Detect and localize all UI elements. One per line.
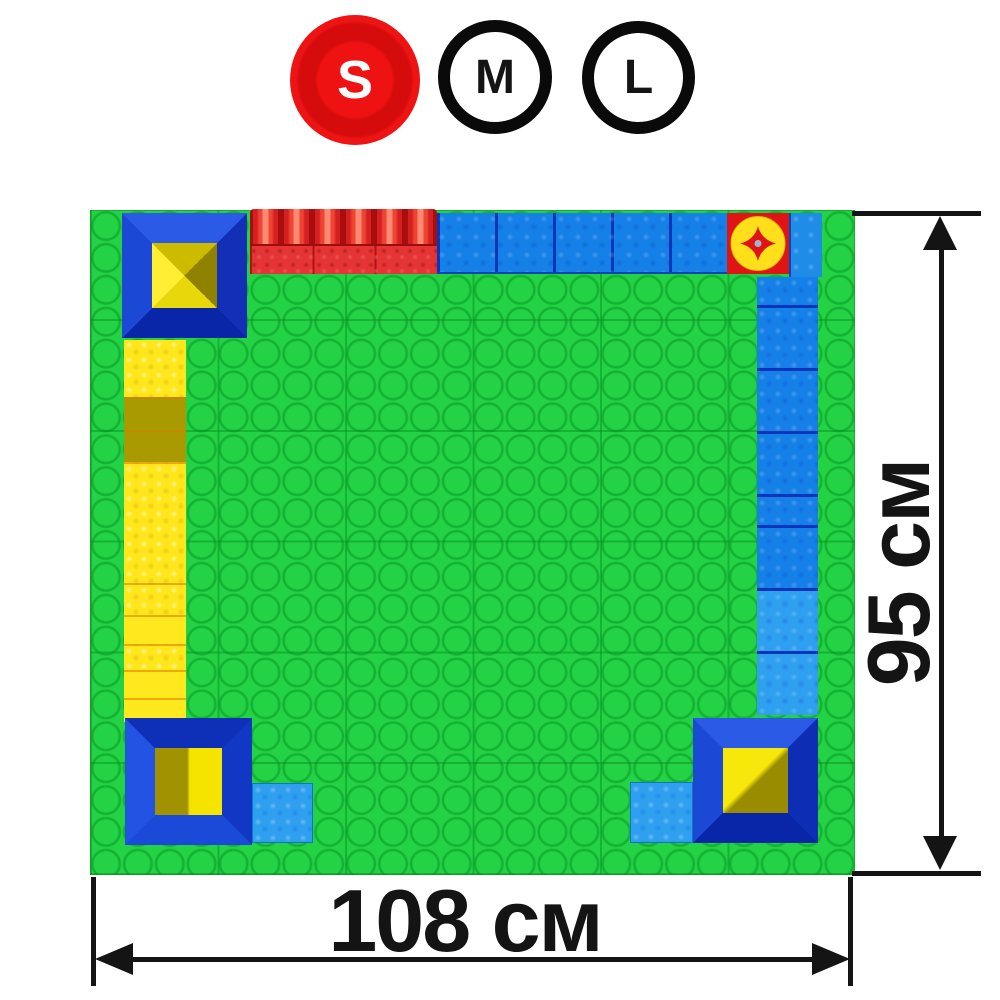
red-textured-blocks-top [250,244,437,274]
yellow-strip-segment [124,644,186,670]
yellow-strip-segment [124,583,186,615]
yellow-strip-segment [124,397,186,430]
yellow-strip-segment [124,462,186,583]
blue-blocks-top [437,213,727,274]
product-image: S M L [0,0,1000,1000]
blue-strip-right [757,277,818,715]
size-option-l-label: L [624,50,653,105]
blue-strip-segment [757,651,818,715]
arrowhead-left-icon [95,943,133,975]
light-blue-block-bottom-left [252,783,313,843]
size-option-s-label: S [337,49,373,111]
blue-block-top-right [789,213,822,277]
light-blue-block-bottom-right [630,782,693,843]
size-option-s[interactable]: S [290,15,420,145]
yellow-strip-segment [124,615,186,644]
corner-tower-top-left [122,213,247,338]
blue-strip-segment [757,525,818,588]
yellow-strip-left [124,340,186,722]
blue-strip-segment [757,431,818,494]
corner-pyramid-bottom-right [723,748,788,813]
blue-strip-segment [757,305,818,368]
play-mat [90,210,855,875]
blue-strip-segment [757,494,818,525]
spinner-disc-top-right [727,213,789,274]
size-selector: S M L [0,0,1000,160]
corner-pyramid-top-left [152,243,217,308]
corner-tower-bottom-left [125,718,252,845]
blue-strip-segment [757,368,818,431]
yellow-strip-segment [124,670,186,698]
arrowhead-right-icon [812,943,850,975]
red-ridge-blocks-top [250,209,437,244]
arrowhead-up-icon [923,216,957,250]
size-option-m[interactable]: M [438,20,552,134]
width-dimension-label: 108 см [328,870,601,972]
corner-tower-bottom-right [693,718,818,843]
blue-strip-segment [757,588,818,651]
arrowhead-down-icon [923,836,957,870]
height-dimension-tick-bottom [852,871,981,876]
blue-strip-segment [757,277,818,305]
yellow-strip-segment [124,340,186,397]
size-option-m-label: M [475,50,515,105]
corner-pyramid-bottom-left [155,748,222,815]
height-dimension-tick-top [852,211,981,216]
yellow-strip-segment [124,430,186,462]
size-option-l[interactable]: L [582,21,695,134]
height-dimension-label: 95 см [848,460,950,686]
